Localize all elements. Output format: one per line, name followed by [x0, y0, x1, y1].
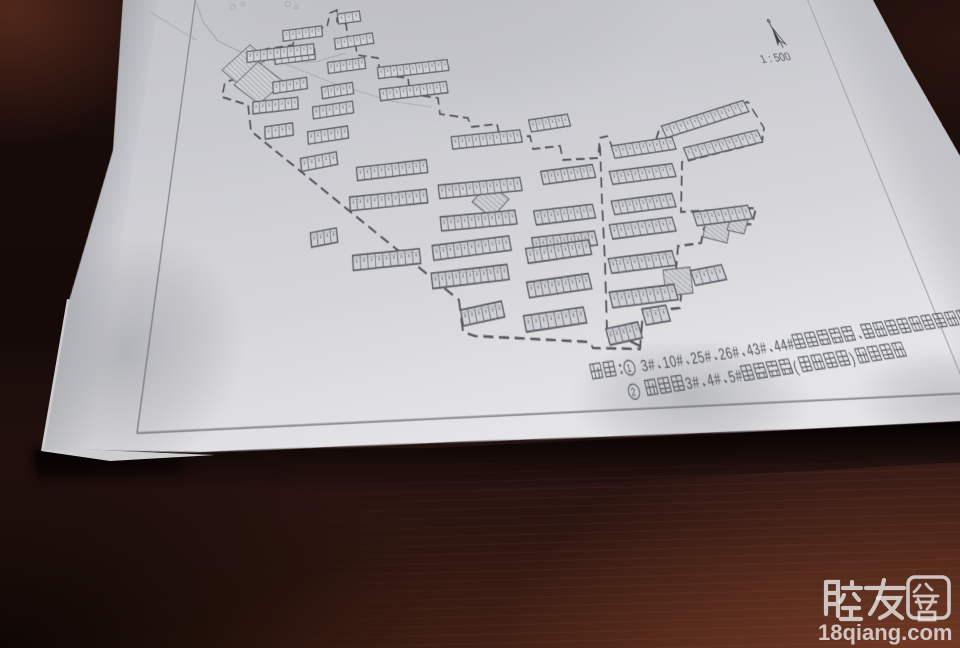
svg-text:18qiang.com: 18qiang.com: [818, 620, 952, 645]
